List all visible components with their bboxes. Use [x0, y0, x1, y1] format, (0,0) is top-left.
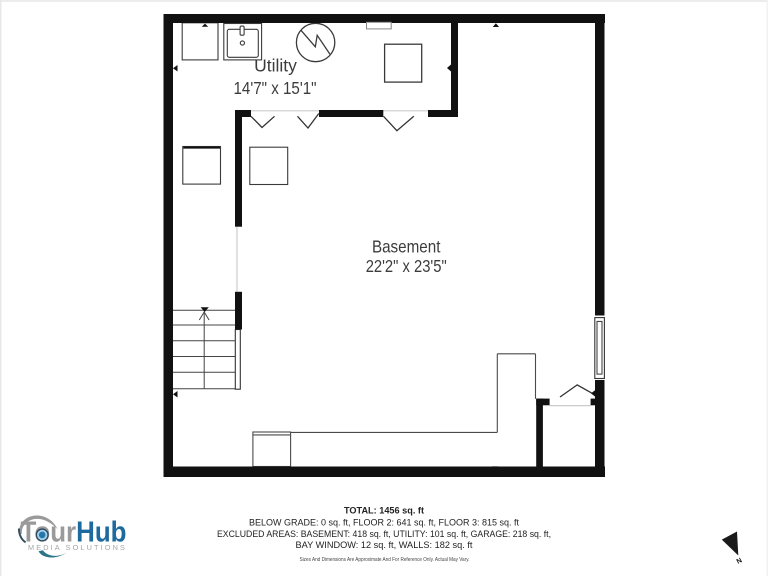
svg-text:14'7" x 15'1": 14'7" x 15'1" — [234, 78, 317, 98]
svg-text:EXCLUDED AREAS: BASEMENT: 418: EXCLUDED AREAS: BASEMENT: 418 sq. ft, UT… — [217, 529, 551, 539]
svg-text:Basement: Basement — [372, 236, 441, 256]
svg-text:22'2" x 23'5": 22'2" x 23'5" — [366, 256, 447, 276]
svg-text:TOTAL: 1456 sq. ft: TOTAL: 1456 sq. ft — [344, 506, 424, 516]
svg-text:BAY WINDOW: 12 sq. ft, WALLS:: BAY WINDOW: 12 sq. ft, WALLS: 182 sq. ft — [296, 540, 473, 550]
svg-text:BELOW GRADE: 0 sq. ft, FLOOR 2: BELOW GRADE: 0 sq. ft, FLOOR 2: 641 sq. … — [249, 518, 519, 528]
svg-text:Utility: Utility — [254, 56, 297, 76]
svg-text:Sizes And Dimensions Are Appro: Sizes And Dimensions Are Approximate And… — [300, 557, 470, 563]
